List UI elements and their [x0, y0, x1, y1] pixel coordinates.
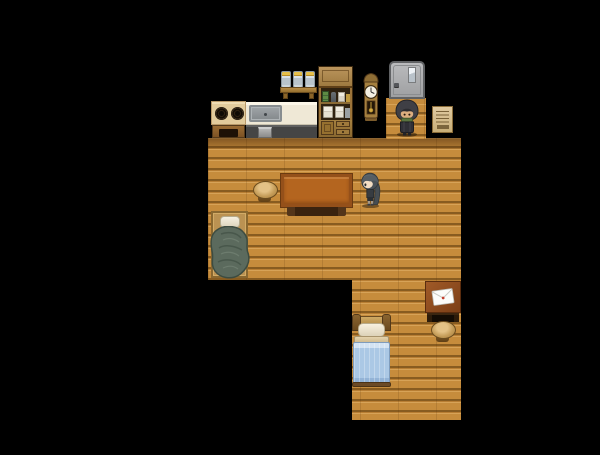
kitchen-cupboard[interactable]	[318, 66, 353, 138]
table-top	[281, 174, 352, 207]
wall-note[interactable]	[432, 106, 453, 133]
glass-jar-icon	[305, 71, 315, 88]
cupboard-drawer	[336, 129, 350, 135]
girl-sprite	[359, 171, 383, 208]
cupboard-shelf-row	[321, 88, 350, 104]
bedroll[interactable]	[211, 211, 248, 278]
bottle-icon	[331, 92, 336, 102]
stove-burner-icon	[231, 107, 244, 120]
white-jar-icon	[338, 92, 345, 102]
canister-icon	[335, 106, 344, 118]
character-girl[interactable]	[359, 171, 383, 208]
green-blanket-icon	[210, 226, 252, 279]
bed[interactable]	[352, 314, 391, 387]
cupboard-top-panel	[319, 67, 352, 88]
shelf-leg	[283, 93, 288, 99]
counter-base	[246, 125, 317, 138]
grandfather-clock[interactable]	[361, 72, 381, 123]
glass-jar-icon	[293, 71, 303, 88]
jar-shelf[interactable]	[280, 70, 317, 99]
entry-door[interactable]	[389, 61, 425, 99]
oven-base	[212, 125, 245, 138]
table-base	[287, 207, 346, 216]
gray-box-icon	[345, 108, 350, 118]
kitchen-counter[interactable]	[246, 102, 317, 138]
stove-top	[211, 101, 246, 125]
bed-footboard	[352, 382, 391, 387]
counter-top	[246, 102, 317, 125]
door-window	[408, 67, 416, 83]
canister-icon	[323, 106, 333, 118]
bed-pillow	[358, 323, 385, 337]
cupboard-drawer	[336, 121, 350, 127]
stove[interactable]	[211, 101, 246, 138]
mail-table[interactable]	[425, 281, 461, 323]
cupboard-shelf-row	[321, 104, 350, 120]
cupboard-base	[319, 120, 352, 137]
game-viewport	[0, 0, 600, 455]
shelf-leg	[309, 93, 314, 99]
cupboard-shelves	[321, 88, 350, 120]
green-cans-icon	[322, 91, 329, 102]
envelope-icon[interactable]	[431, 288, 455, 307]
sink[interactable]	[249, 105, 282, 122]
tin-icon	[346, 94, 350, 102]
door-handle-icon	[394, 83, 399, 87]
npc-hooded-figure[interactable]	[394, 99, 420, 137]
stool-left[interactable]	[253, 181, 276, 203]
cupboard-door	[321, 121, 334, 135]
bed-blanket	[353, 342, 390, 386]
trash-bin[interactable]	[258, 127, 272, 138]
glass-jar-icon	[281, 71, 291, 88]
hooded-figure-sprite	[394, 99, 420, 137]
stool-right[interactable]	[431, 321, 453, 343]
dining-table[interactable]	[281, 174, 352, 216]
oven-opening	[219, 129, 238, 137]
clock-icon	[361, 72, 381, 123]
stove-burner-icon	[215, 107, 228, 120]
